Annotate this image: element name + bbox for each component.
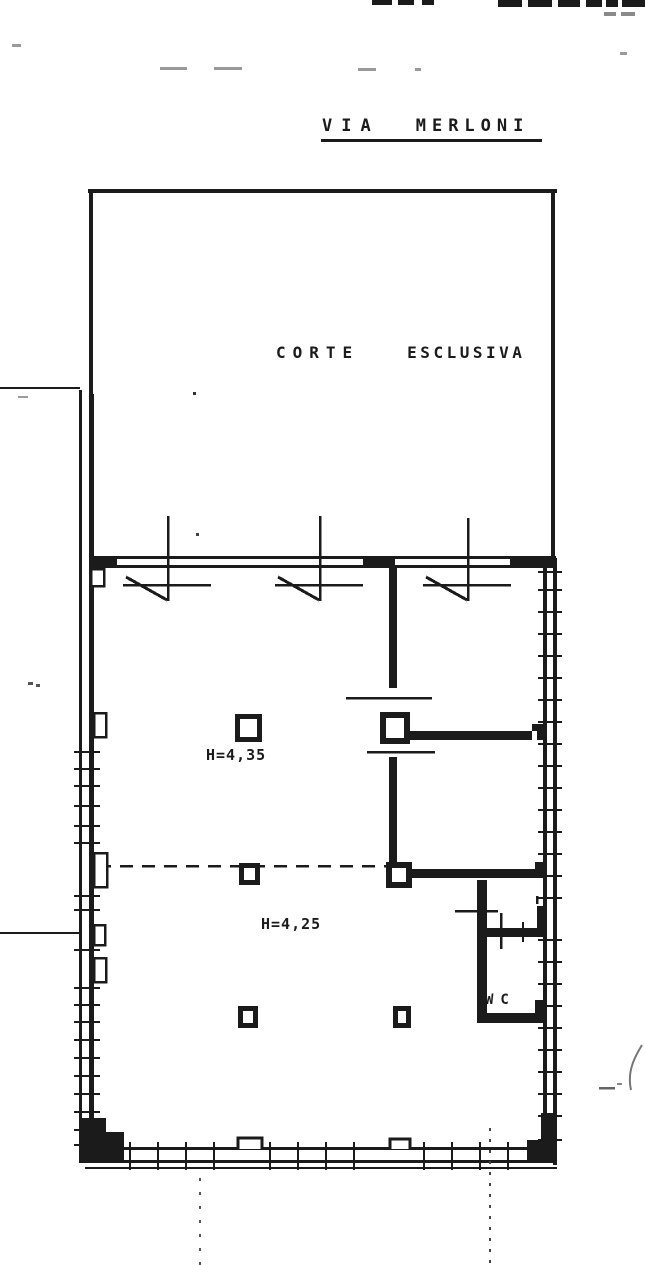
courtyard-left-wall <box>89 189 93 394</box>
interior-vertical-wall-lower <box>389 757 397 863</box>
wc-door-tick <box>455 910 498 913</box>
building-bottom-wall <box>80 1113 557 1169</box>
left-wall-hatching <box>74 752 100 1145</box>
pillar <box>389 865 409 885</box>
street-name-underline <box>321 139 542 142</box>
floorplan-scan-page: VIA MERLONI CORTE ESCLUSIVA H=4,35 H=4,2… <box>0 0 645 1265</box>
wc-room <box>455 880 545 1023</box>
left-tie-line-lower <box>0 932 80 934</box>
left-wall-inner-line <box>89 394 94 1163</box>
bottom-right-corner-block <box>527 1113 557 1163</box>
wc-partition-wall <box>477 928 545 937</box>
left-wall-pilasters <box>94 713 107 982</box>
bottom-wall-bump <box>238 1138 262 1149</box>
bottom-wall-bump <box>390 1139 410 1149</box>
wc-left-wall <box>477 880 487 1018</box>
interior-horizontal-wall-lower <box>411 869 535 878</box>
window-icon <box>423 518 511 601</box>
bottom-wall-hatching <box>130 1142 508 1170</box>
right-exterior-wall <box>537 558 557 1165</box>
column-icon <box>242 866 258 883</box>
right-wall-hatching <box>538 572 562 1140</box>
wc-door-tick <box>500 913 503 949</box>
interior-horizontal-wall-upper <box>409 731 532 740</box>
bottom-tie-line <box>85 1167 557 1169</box>
column-icon <box>396 1009 409 1026</box>
courtyard-right-wall <box>551 189 555 560</box>
bottom-left-corner-block <box>80 1118 124 1163</box>
column-icon <box>241 1009 256 1026</box>
floorplan-linework <box>0 0 645 1265</box>
interior-walls <box>346 568 543 885</box>
courtyard-top-wall <box>88 189 557 193</box>
wc-bottom-wall <box>477 1013 539 1023</box>
courtyard-walls <box>88 189 557 560</box>
left-tie-line-upper <box>0 387 80 389</box>
page-fold-mark <box>599 1045 642 1090</box>
wc-wall-step <box>535 1000 545 1023</box>
building-top-wall <box>91 556 556 568</box>
scan-artifact-top-text <box>372 0 645 16</box>
scan-artifact-dashes <box>12 44 627 904</box>
left-wall-outer-line <box>79 390 82 1163</box>
door-threshold-line <box>367 751 435 754</box>
left-boundary <box>0 387 94 1163</box>
top-left-wall-step <box>91 569 104 586</box>
column-icon <box>238 717 260 740</box>
door-threshold-line <box>346 697 432 700</box>
columns <box>238 717 409 1026</box>
interior-vertical-wall-upper <box>389 568 397 688</box>
pillar <box>383 715 407 741</box>
wc-door-tick <box>522 922 524 942</box>
